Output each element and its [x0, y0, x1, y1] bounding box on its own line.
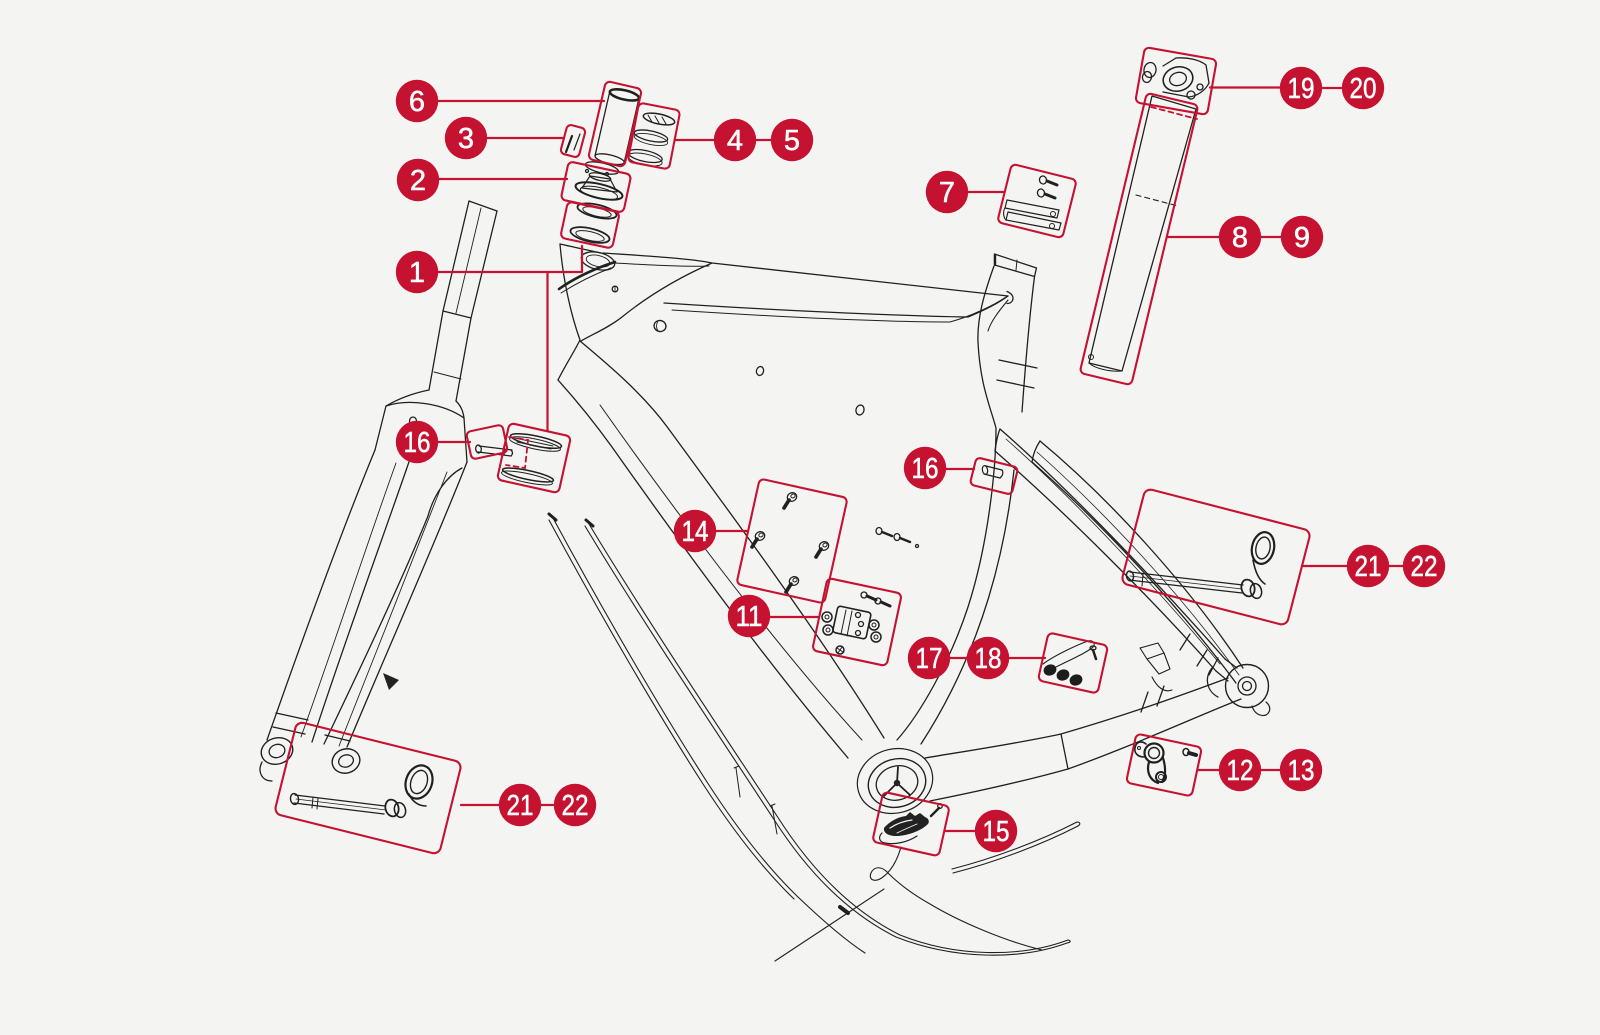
- svg-text:20: 20: [1350, 73, 1377, 105]
- svg-text:22: 22: [562, 790, 589, 822]
- svg-text:9: 9: [1294, 222, 1310, 254]
- svg-text:14: 14: [682, 516, 709, 548]
- svg-text:17: 17: [916, 643, 943, 675]
- svg-text:6: 6: [409, 86, 425, 118]
- svg-text:15: 15: [983, 816, 1010, 848]
- svg-text:4: 4: [727, 125, 743, 157]
- svg-text:21: 21: [507, 790, 534, 822]
- svg-text:11: 11: [736, 601, 763, 633]
- svg-text:18: 18: [975, 643, 1002, 675]
- svg-text:7: 7: [939, 177, 955, 209]
- svg-text:2: 2: [410, 165, 426, 197]
- svg-text:16: 16: [404, 427, 431, 459]
- svg-text:22: 22: [1411, 551, 1438, 583]
- svg-text:16: 16: [912, 453, 939, 485]
- svg-text:13: 13: [1288, 755, 1315, 787]
- svg-text:3: 3: [458, 123, 474, 155]
- svg-text:19: 19: [1288, 73, 1315, 105]
- svg-text:12: 12: [1227, 755, 1254, 787]
- svg-text:21: 21: [1355, 551, 1382, 583]
- svg-text:1: 1: [409, 257, 425, 289]
- svg-text:8: 8: [1232, 222, 1248, 254]
- svg-text:5: 5: [784, 125, 800, 157]
